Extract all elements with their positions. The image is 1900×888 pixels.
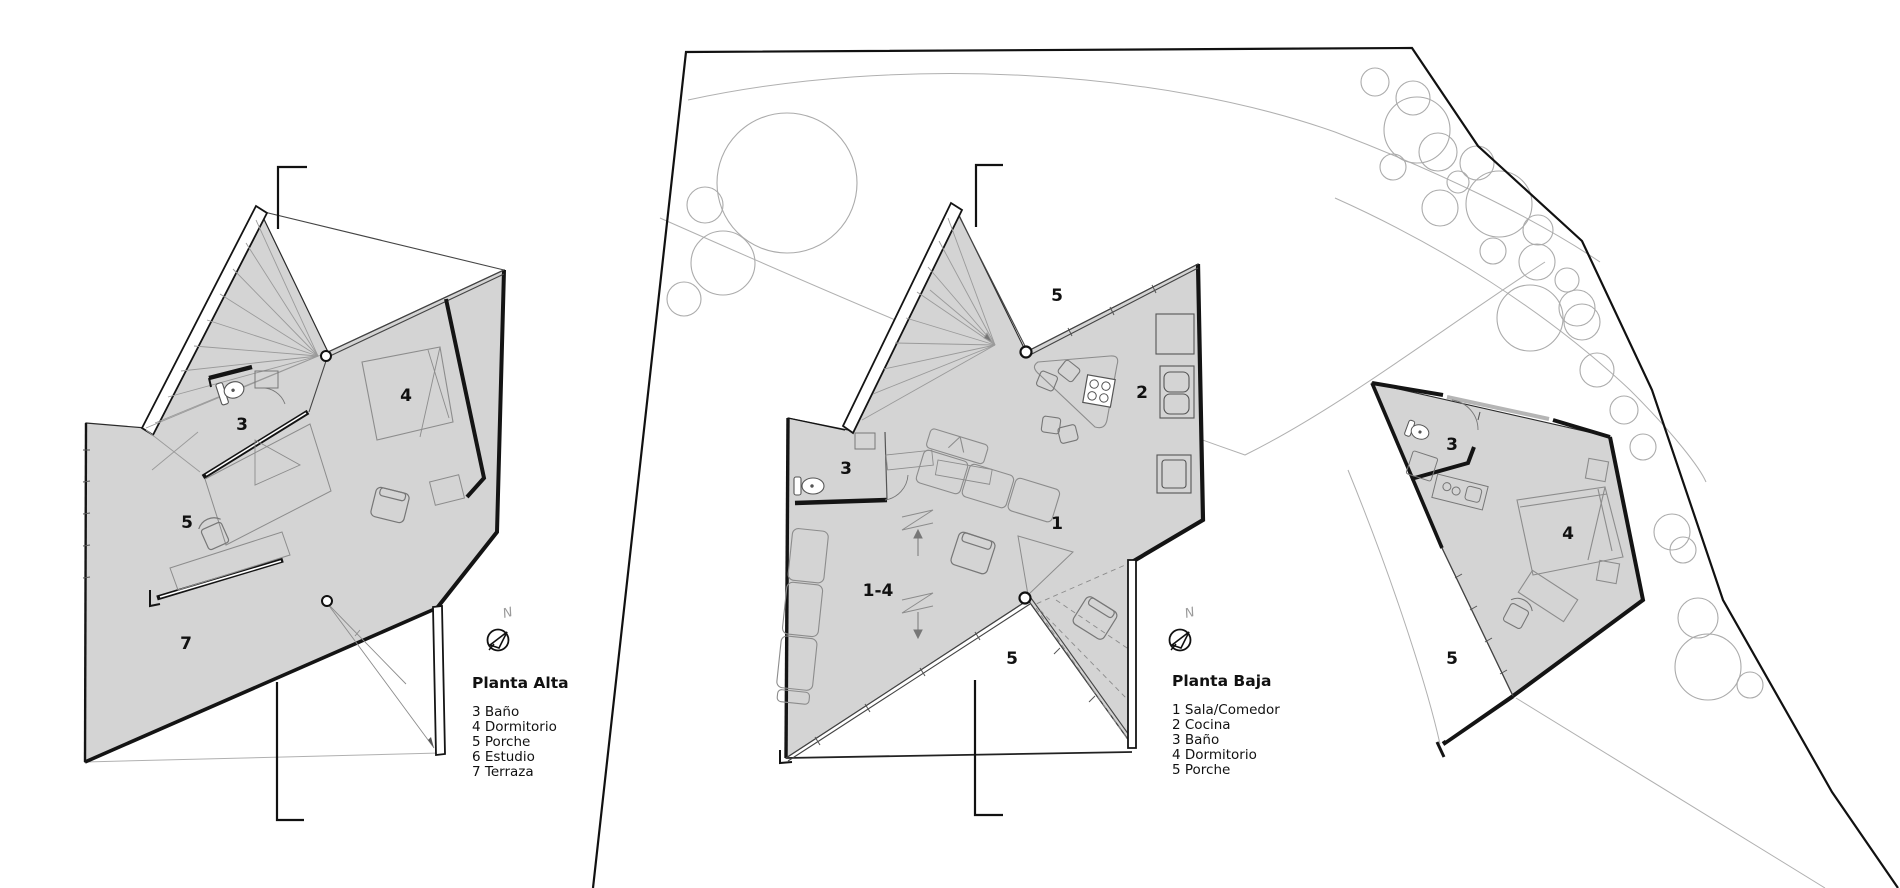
plan-planta-alta (83, 167, 504, 820)
plan-sheet: N N 3 4 5 7 5 2 3 1 1-4 5 3 4 5 Planta A… (0, 0, 1900, 888)
legend-baja-item: 5 Porche (1172, 762, 1230, 778)
legend-baja-item: 4 Dormitorio (1172, 747, 1257, 763)
guest-label-porch: 5 (1446, 649, 1458, 669)
alta-label-terrace: 7 (180, 634, 192, 654)
baja-floor-slab (786, 207, 1203, 758)
legend-planta-alta: Planta Alta 3 Baño 4 Dormitorio 5 Porche… (472, 674, 569, 780)
legend-alta-title: Planta Alta (472, 674, 569, 692)
alta-column-bottom (322, 596, 332, 606)
baja-column-top (1021, 347, 1032, 358)
north-arrow-alta: N (488, 605, 515, 651)
legend-alta-item: 5 Porche (472, 734, 530, 750)
baja-section-marker-top (976, 165, 1003, 227)
plan-guest-pavilion (1372, 383, 1643, 757)
baja-label-porch-bottom: 5 (1006, 649, 1018, 669)
legend-alta-item: 7 Terraza (472, 764, 534, 780)
baja-column-bottom (1020, 593, 1031, 604)
legend-alta-item: 3 Baño (472, 704, 519, 720)
alta-label-bedroom: 4 (400, 386, 412, 406)
legend-baja-title: Planta Baja (1172, 672, 1271, 690)
baja-label-living-bed: 1-4 (863, 581, 894, 601)
baja-section-marker-bottom (975, 680, 1003, 815)
north-label-alta: N (501, 605, 514, 622)
plan-planta-baja (775, 165, 1203, 815)
legend-baja-item: 1 Sala/Comedor (1172, 702, 1280, 718)
alta-section-marker-bottom (277, 682, 304, 820)
legend-planta-baja: Planta Baja 1 Sala/Comedor 2 Cocina 3 Ba… (1172, 672, 1280, 778)
legend-alta-item: 6 Estudio (472, 749, 535, 765)
baja-label-kitchen: 2 (1136, 383, 1148, 403)
baja-label-bath: 3 (840, 459, 852, 479)
legend-alta-item: 4 Dormitorio (472, 719, 557, 735)
baja-label-living: 1 (1051, 514, 1063, 534)
north-arrow-baja: N (1170, 605, 1197, 651)
alta-label-porch: 5 (181, 513, 193, 533)
north-label-baja: N (1183, 605, 1196, 622)
legend-baja-item: 3 Baño (1172, 732, 1219, 748)
guest-label-bedroom: 4 (1562, 524, 1574, 544)
baja-label-porch-top: 5 (1051, 286, 1063, 306)
alta-section-marker-top (278, 167, 307, 229)
legend-baja-item: 2 Cocina (1172, 717, 1231, 733)
guest-label-bath: 3 (1446, 435, 1458, 455)
alta-label-bath: 3 (236, 415, 248, 435)
plan-drawing: N N 3 4 5 7 5 2 3 1 1-4 5 3 4 5 Planta A… (0, 0, 1900, 888)
alta-column-top (321, 351, 331, 361)
